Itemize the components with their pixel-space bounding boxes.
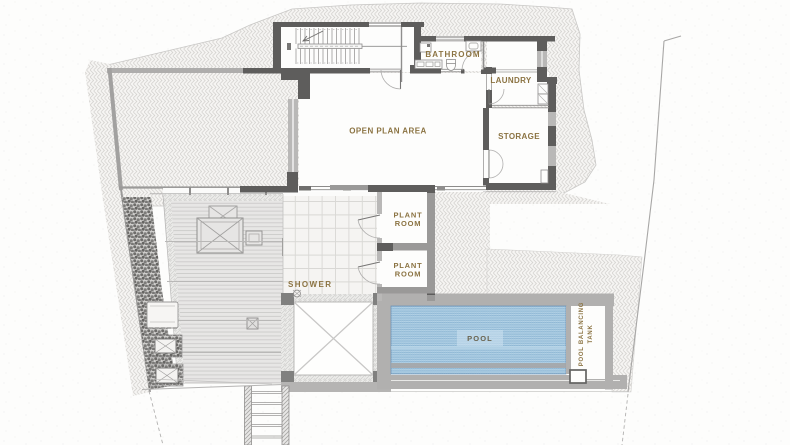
svg-text:POOL BALANCING: POOL BALANCING <box>579 302 585 366</box>
svg-text:ROOM: ROOM <box>395 219 422 228</box>
svg-text:STORAGE: STORAGE <box>498 132 540 141</box>
svg-text:ROOM: ROOM <box>395 270 422 279</box>
svg-text:SHOWER: SHOWER <box>288 280 332 289</box>
svg-text:BATHROOM: BATHROOM <box>425 50 480 59</box>
svg-text:POOL: POOL <box>467 334 493 343</box>
svg-text:TANK: TANK <box>588 324 594 343</box>
svg-text:OPEN PLAN AREA: OPEN PLAN AREA <box>349 127 427 136</box>
svg-text:LAUNDRY: LAUNDRY <box>490 76 532 85</box>
